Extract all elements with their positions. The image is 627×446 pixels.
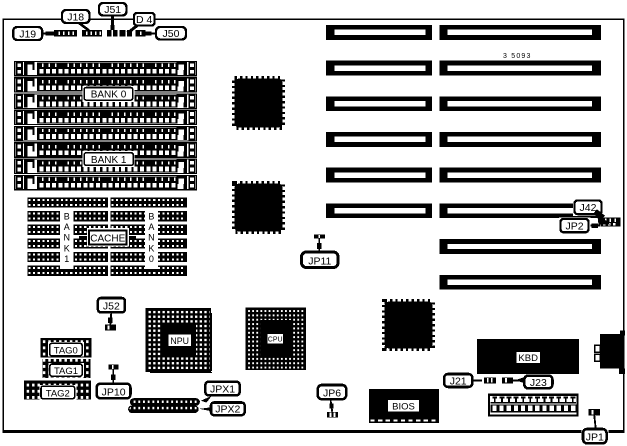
- svg-text:B: B: [148, 212, 154, 222]
- svg-text:A: A: [64, 222, 70, 232]
- svg-text:J21: J21: [450, 375, 467, 387]
- svg-text:BIOS: BIOS: [392, 402, 415, 413]
- svg-text:B: B: [64, 212, 70, 222]
- svg-text:JP1: JP1: [586, 431, 604, 443]
- svg-text:K: K: [148, 243, 154, 253]
- svg-text:KBD: KBD: [518, 353, 538, 364]
- svg-text:BANK 0: BANK 0: [91, 90, 127, 101]
- svg-text:J19: J19: [19, 28, 36, 40]
- svg-text:D 4: D 4: [136, 14, 153, 26]
- svg-text:J42: J42: [580, 202, 597, 214]
- svg-text:CACHE: CACHE: [90, 233, 125, 244]
- svg-text:N: N: [148, 233, 155, 243]
- svg-text:JPX2: JPX2: [215, 404, 240, 416]
- svg-text:J23: J23: [530, 377, 547, 389]
- svg-text:TAG2: TAG2: [46, 388, 70, 399]
- svg-text:JPX1: JPX1: [210, 383, 235, 395]
- svg-text:NPU: NPU: [170, 336, 189, 346]
- svg-text:J50: J50: [163, 28, 180, 40]
- svg-text:TAG1: TAG1: [54, 366, 78, 377]
- svg-text:CPU: CPU: [268, 337, 283, 344]
- svg-text:0: 0: [149, 254, 154, 264]
- svg-text:JP11: JP11: [308, 255, 331, 267]
- svg-text:J52: J52: [103, 300, 120, 312]
- svg-text:BANK 1: BANK 1: [91, 155, 127, 166]
- svg-text:1: 1: [64, 254, 69, 264]
- svg-text:J51: J51: [104, 4, 121, 16]
- svg-text:K: K: [64, 243, 70, 253]
- svg-text:A: A: [148, 222, 154, 232]
- svg-text:JP6: JP6: [323, 387, 341, 399]
- svg-text:TAG0: TAG0: [54, 345, 78, 356]
- svg-text:3 5093: 3 5093: [503, 53, 532, 60]
- svg-text:JP2: JP2: [565, 221, 583, 233]
- svg-text:N: N: [63, 233, 70, 243]
- svg-text:JP10: JP10: [102, 386, 126, 398]
- svg-text:J18: J18: [67, 11, 84, 23]
